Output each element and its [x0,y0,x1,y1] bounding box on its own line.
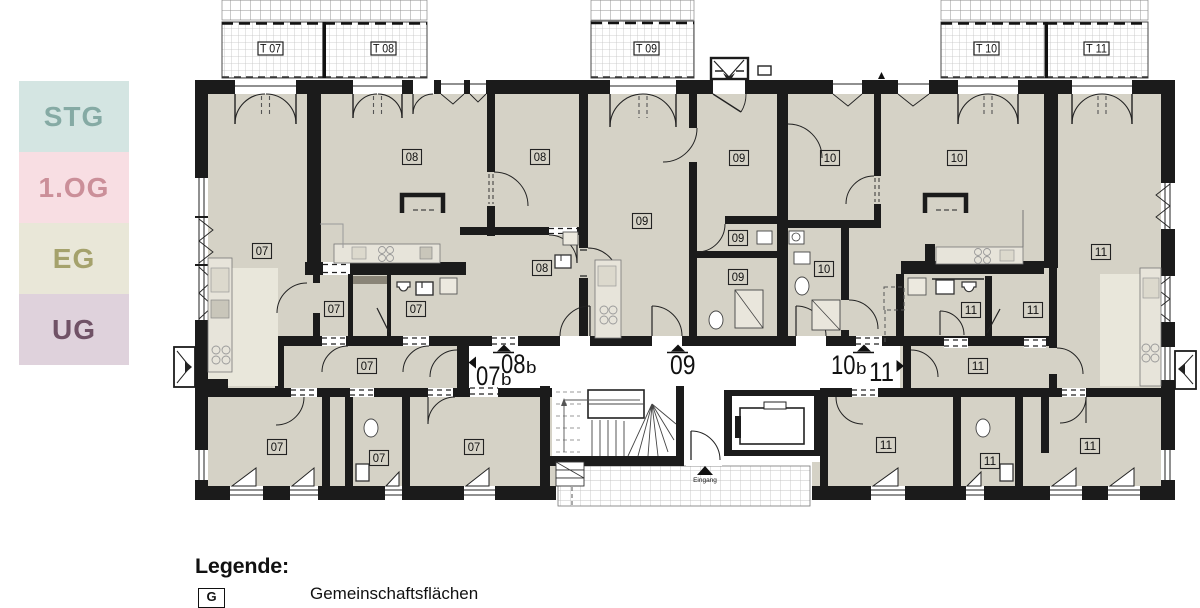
svg-text:08: 08 [534,150,547,164]
svg-text:07: 07 [373,451,386,465]
svg-text:T 10: T 10 [976,44,997,56]
svg-text:11: 11 [984,454,997,468]
svg-text:11: 11 [869,357,894,387]
svg-text:Eingang: Eingang [693,477,717,484]
svg-text:11: 11 [972,359,985,373]
svg-text:T 08: T 08 [373,44,394,56]
svg-text:11: 11 [1027,303,1040,317]
svg-text:b: b [856,359,867,378]
svg-text:11: 11 [1084,439,1097,453]
svg-text:T 07: T 07 [260,44,281,56]
svg-text:T 09: T 09 [636,44,657,56]
svg-text:09: 09 [733,151,746,165]
svg-text:07: 07 [256,244,269,258]
svg-text:10: 10 [951,151,964,165]
svg-text:08: 08 [536,261,549,275]
svg-text:T 11: T 11 [1086,44,1107,56]
svg-text:11: 11 [965,303,978,317]
svg-text:07: 07 [328,302,341,316]
svg-text:09: 09 [670,350,696,380]
svg-text:07: 07 [271,440,284,454]
svg-text:11: 11 [880,438,893,452]
svg-text:07: 07 [361,359,374,373]
svg-text:11: 11 [1095,245,1108,259]
svg-text:07: 07 [468,440,481,454]
svg-text:10: 10 [824,151,837,165]
svg-text:09: 09 [732,270,745,284]
svg-text:07: 07 [476,361,501,391]
svg-text:09: 09 [636,214,649,228]
svg-text:08: 08 [501,349,526,379]
svg-text:07: 07 [410,302,423,316]
svg-text:10: 10 [818,262,831,276]
svg-text:08: 08 [406,150,419,164]
svg-text:b: b [526,358,537,377]
svg-text:09: 09 [732,231,745,245]
svg-text:10: 10 [831,350,856,380]
